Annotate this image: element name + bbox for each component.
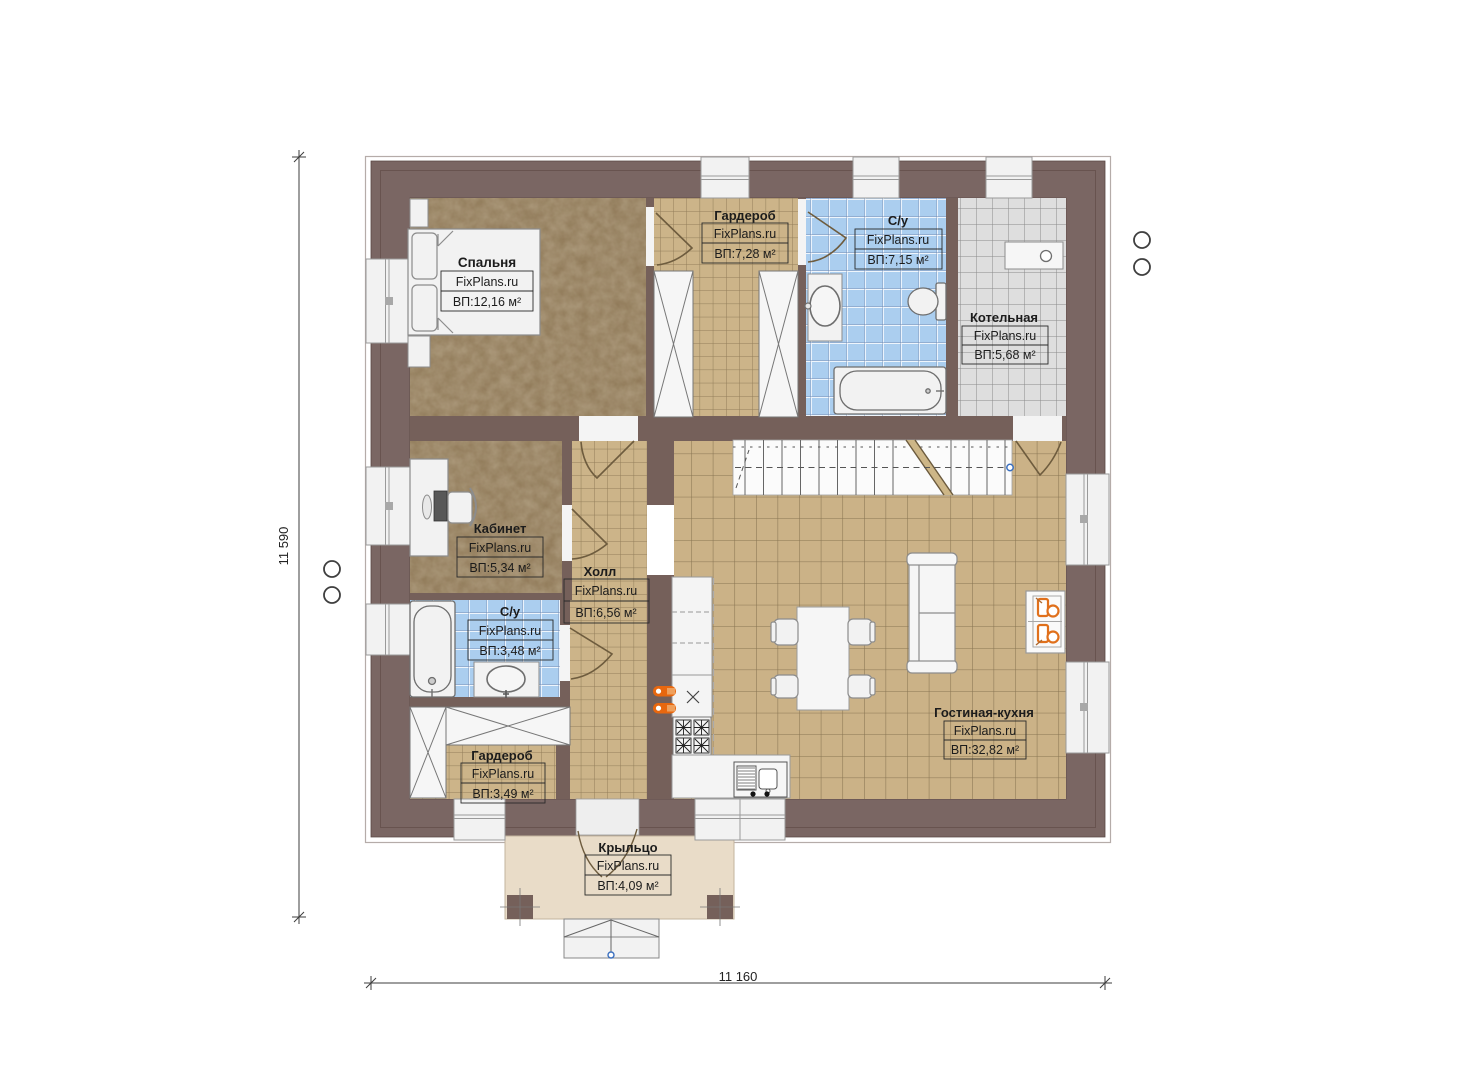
svg-text:ВП:4,09 м²: ВП:4,09 м² — [597, 879, 658, 893]
svg-text:FixPlans.ru: FixPlans.ru — [974, 329, 1037, 343]
svg-text:ВП:3,49 м²: ВП:3,49 м² — [472, 787, 533, 801]
svg-text:FixPlans.ru: FixPlans.ru — [714, 227, 777, 241]
svg-text:Гостиная-кухня: Гостиная-кухня — [934, 705, 1034, 720]
svg-text:ВП:5,68 м²: ВП:5,68 м² — [974, 348, 1035, 362]
svg-text:FixPlans.ru: FixPlans.ru — [597, 859, 660, 873]
svg-text:FixPlans.ru: FixPlans.ru — [954, 724, 1017, 738]
svg-text:С/у: С/у — [500, 604, 521, 619]
svg-text:FixPlans.ru: FixPlans.ru — [575, 584, 638, 598]
svg-text:ВП:5,34 м²: ВП:5,34 м² — [469, 561, 530, 575]
svg-text:ВП:32,82 м²: ВП:32,82 м² — [951, 743, 1019, 757]
svg-text:Спальня: Спальня — [458, 255, 516, 270]
svg-text:ВП:7,28 м²: ВП:7,28 м² — [714, 247, 775, 261]
svg-text:FixPlans.ru: FixPlans.ru — [479, 624, 542, 638]
svg-text:11 160: 11 160 — [719, 969, 758, 984]
svg-text:Котельная: Котельная — [970, 310, 1038, 325]
svg-text:Гардероб: Гардероб — [714, 208, 775, 223]
svg-text:ВП:6,56 м²: ВП:6,56 м² — [575, 606, 636, 620]
svg-text:ВП:3,48 м²: ВП:3,48 м² — [479, 644, 540, 658]
svg-text:Холл: Холл — [584, 564, 617, 579]
svg-text:ВП:7,15 м²: ВП:7,15 м² — [867, 253, 928, 267]
svg-text:FixPlans.ru: FixPlans.ru — [469, 541, 532, 555]
svg-text:FixPlans.ru: FixPlans.ru — [867, 233, 930, 247]
svg-text:11 590: 11 590 — [276, 527, 291, 566]
svg-text:Гардероб: Гардероб — [471, 748, 532, 763]
svg-text:Кабинет: Кабинет — [474, 521, 527, 536]
svg-text:С/у: С/у — [888, 213, 909, 228]
svg-text:FixPlans.ru: FixPlans.ru — [472, 767, 535, 781]
svg-text:ВП:12,16 м²: ВП:12,16 м² — [453, 295, 521, 309]
svg-text:Крыльцо: Крыльцо — [598, 840, 657, 855]
svg-text:FixPlans.ru: FixPlans.ru — [456, 275, 519, 289]
